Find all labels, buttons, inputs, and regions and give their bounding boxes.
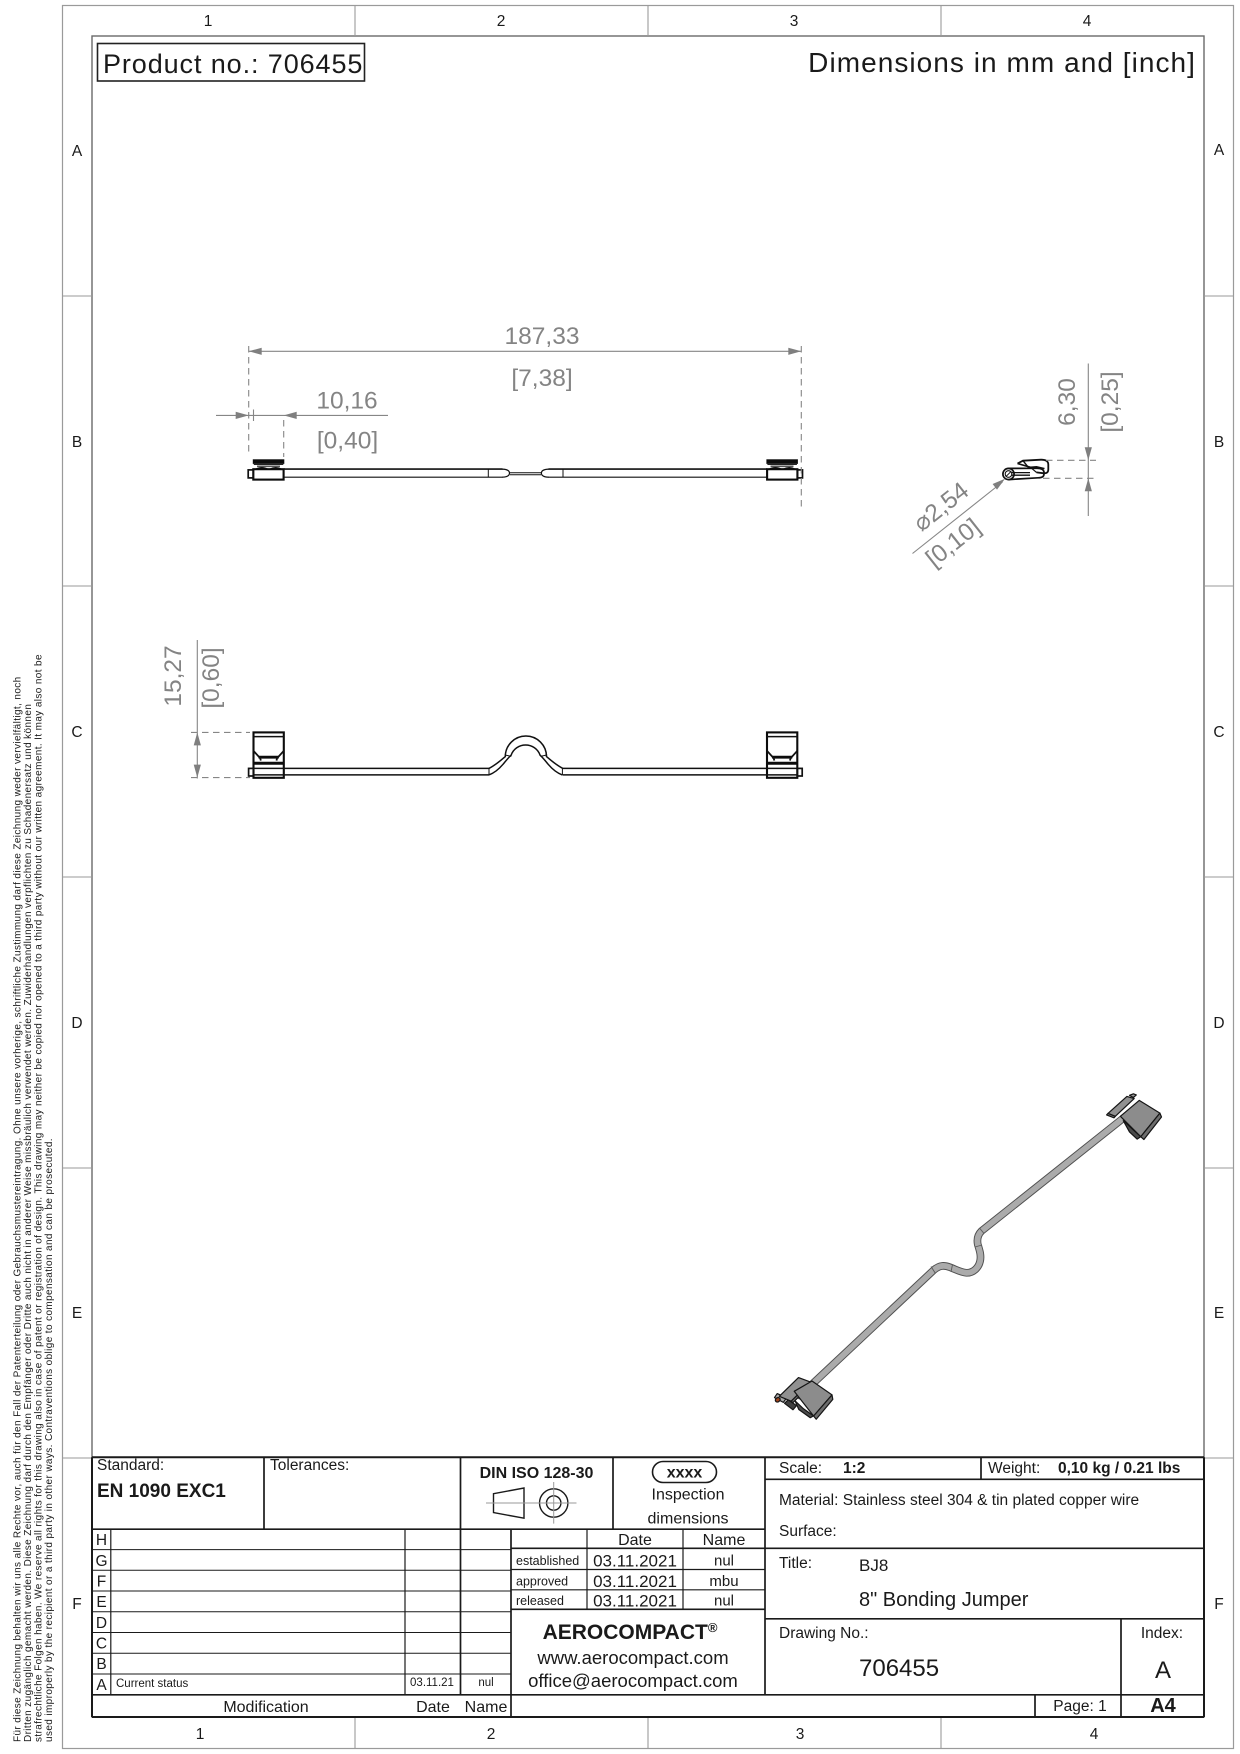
svg-text:[0,25]: [0,25] [1097, 371, 1124, 432]
svg-text:F: F [72, 1596, 81, 1613]
svg-text:Current status: Current status [116, 1678, 188, 1690]
svg-text:nul: nul [714, 1553, 734, 1570]
svg-text:Index:: Index: [1141, 1625, 1183, 1642]
svg-text:Date: Date [416, 1699, 450, 1716]
svg-text:approved: approved [516, 1575, 568, 1589]
svg-text:1: 1 [204, 13, 213, 30]
svg-text:C: C [96, 1636, 107, 1653]
svg-text:1: 1 [196, 1726, 205, 1743]
svg-text:10,16: 10,16 [316, 388, 377, 415]
svg-text:Dritten zugänglich gemacht wer: Dritten zugänglich gemacht werden. Diese… [23, 704, 34, 1742]
svg-text:nul: nul [714, 1593, 734, 1610]
svg-text:3: 3 [796, 1726, 805, 1743]
svg-text:F: F [1214, 1596, 1223, 1613]
svg-text:www.aerocompact.com: www.aerocompact.com [536, 1647, 728, 1668]
svg-text:strafrechtliche Folgen haben.: strafrechtliche Folgen haben. We reserve… [34, 654, 45, 1742]
svg-text:03.11.21: 03.11.21 [410, 1677, 454, 1689]
svg-text:Product no.: 706455: Product no.: 706455 [103, 49, 363, 79]
svg-text:BJ8: BJ8 [859, 1556, 888, 1575]
svg-text:H: H [96, 1532, 107, 1549]
svg-text:03.11.2021: 03.11.2021 [593, 1552, 677, 1571]
svg-text:nul: nul [478, 1677, 493, 1689]
svg-text:dimensions: dimensions [648, 1511, 729, 1528]
svg-text:Drawing No.:: Drawing No.: [779, 1625, 869, 1642]
svg-text:706455: 706455 [859, 1655, 939, 1682]
svg-text:03.11.2021: 03.11.2021 [593, 1572, 677, 1591]
svg-text:Surface:: Surface: [779, 1523, 837, 1540]
svg-text:Name: Name [703, 1532, 746, 1549]
svg-text:established: established [516, 1554, 579, 1568]
svg-text:A: A [96, 1677, 107, 1694]
svg-text:Name: Name [465, 1699, 508, 1716]
svg-text:mbu: mbu [709, 1573, 738, 1590]
svg-text:A: A [1214, 142, 1225, 159]
svg-text:6,30: 6,30 [1054, 378, 1081, 426]
svg-text:15,27: 15,27 [160, 645, 187, 706]
svg-text:8" Bonding Jumper: 8" Bonding Jumper [859, 1589, 1029, 1611]
svg-text:G: G [95, 1553, 107, 1570]
svg-text:Title:: Title: [779, 1555, 812, 1572]
svg-text:Standard:: Standard: [97, 1457, 164, 1474]
svg-text:used improperly by the recipie: used improperly by the recipient or a th… [44, 1138, 55, 1742]
svg-text:Material: Stainless steel 304: Material: Stainless steel 304 & tin plat… [779, 1492, 1139, 1509]
svg-text:[0,40]: [0,40] [317, 428, 378, 455]
svg-text:0,10 kg / 0.21 lbs: 0,10 kg / 0.21 lbs [1058, 1460, 1180, 1477]
svg-text:released: released [516, 1594, 564, 1608]
svg-text:xxxx: xxxx [667, 1465, 703, 1482]
svg-text:4: 4 [1083, 13, 1092, 30]
svg-text:Tolerances:: Tolerances: [270, 1457, 349, 1474]
svg-text:1:2: 1:2 [843, 1460, 865, 1477]
svg-text:A: A [1155, 1657, 1171, 1684]
svg-text:E: E [1214, 1305, 1224, 1322]
svg-text:B: B [72, 434, 82, 451]
svg-text:D: D [1213, 1015, 1224, 1032]
svg-text:A4: A4 [1150, 1695, 1176, 1717]
svg-text:Scale:: Scale: [779, 1460, 822, 1477]
svg-text:office@aerocompact.com: office@aerocompact.com [528, 1670, 738, 1691]
svg-text:2: 2 [497, 13, 506, 30]
svg-text:Dimensions in mm and [inch]: Dimensions in mm and [inch] [808, 47, 1196, 78]
svg-text:[7,38]: [7,38] [511, 365, 572, 392]
svg-text:03.11.2021: 03.11.2021 [593, 1592, 677, 1611]
svg-text:C: C [71, 724, 82, 741]
svg-text:DIN ISO 128-30: DIN ISO 128-30 [480, 1465, 594, 1482]
svg-text:187,33: 187,33 [505, 323, 580, 350]
svg-text:E: E [72, 1305, 82, 1322]
svg-text:2: 2 [487, 1726, 496, 1743]
svg-text:Weight:: Weight: [988, 1460, 1040, 1477]
svg-text:F: F [97, 1574, 106, 1591]
svg-text:EN 1090 EXC1: EN 1090 EXC1 [97, 1481, 226, 1502]
svg-text:[0,60]: [0,60] [198, 647, 225, 708]
svg-text:3: 3 [790, 13, 799, 30]
svg-text:Inspection: Inspection [652, 1487, 725, 1504]
svg-text:B: B [1214, 434, 1224, 451]
svg-text:B: B [96, 1656, 106, 1673]
svg-text:Modification: Modification [223, 1699, 308, 1716]
svg-text:D: D [71, 1015, 82, 1032]
svg-text:C: C [1213, 724, 1224, 741]
svg-text:D: D [96, 1615, 107, 1632]
svg-text:AEROCOMPACT®: AEROCOMPACT® [543, 1620, 718, 1644]
svg-text:Date: Date [618, 1532, 652, 1549]
svg-text:4: 4 [1090, 1726, 1099, 1743]
svg-text:A: A [72, 143, 83, 160]
svg-text:Page: 1: Page: 1 [1053, 1698, 1106, 1715]
svg-text:E: E [96, 1594, 106, 1611]
svg-text:Für diese Zeichnung behalten w: Für diese Zeichnung behalten wir uns all… [13, 676, 24, 1742]
